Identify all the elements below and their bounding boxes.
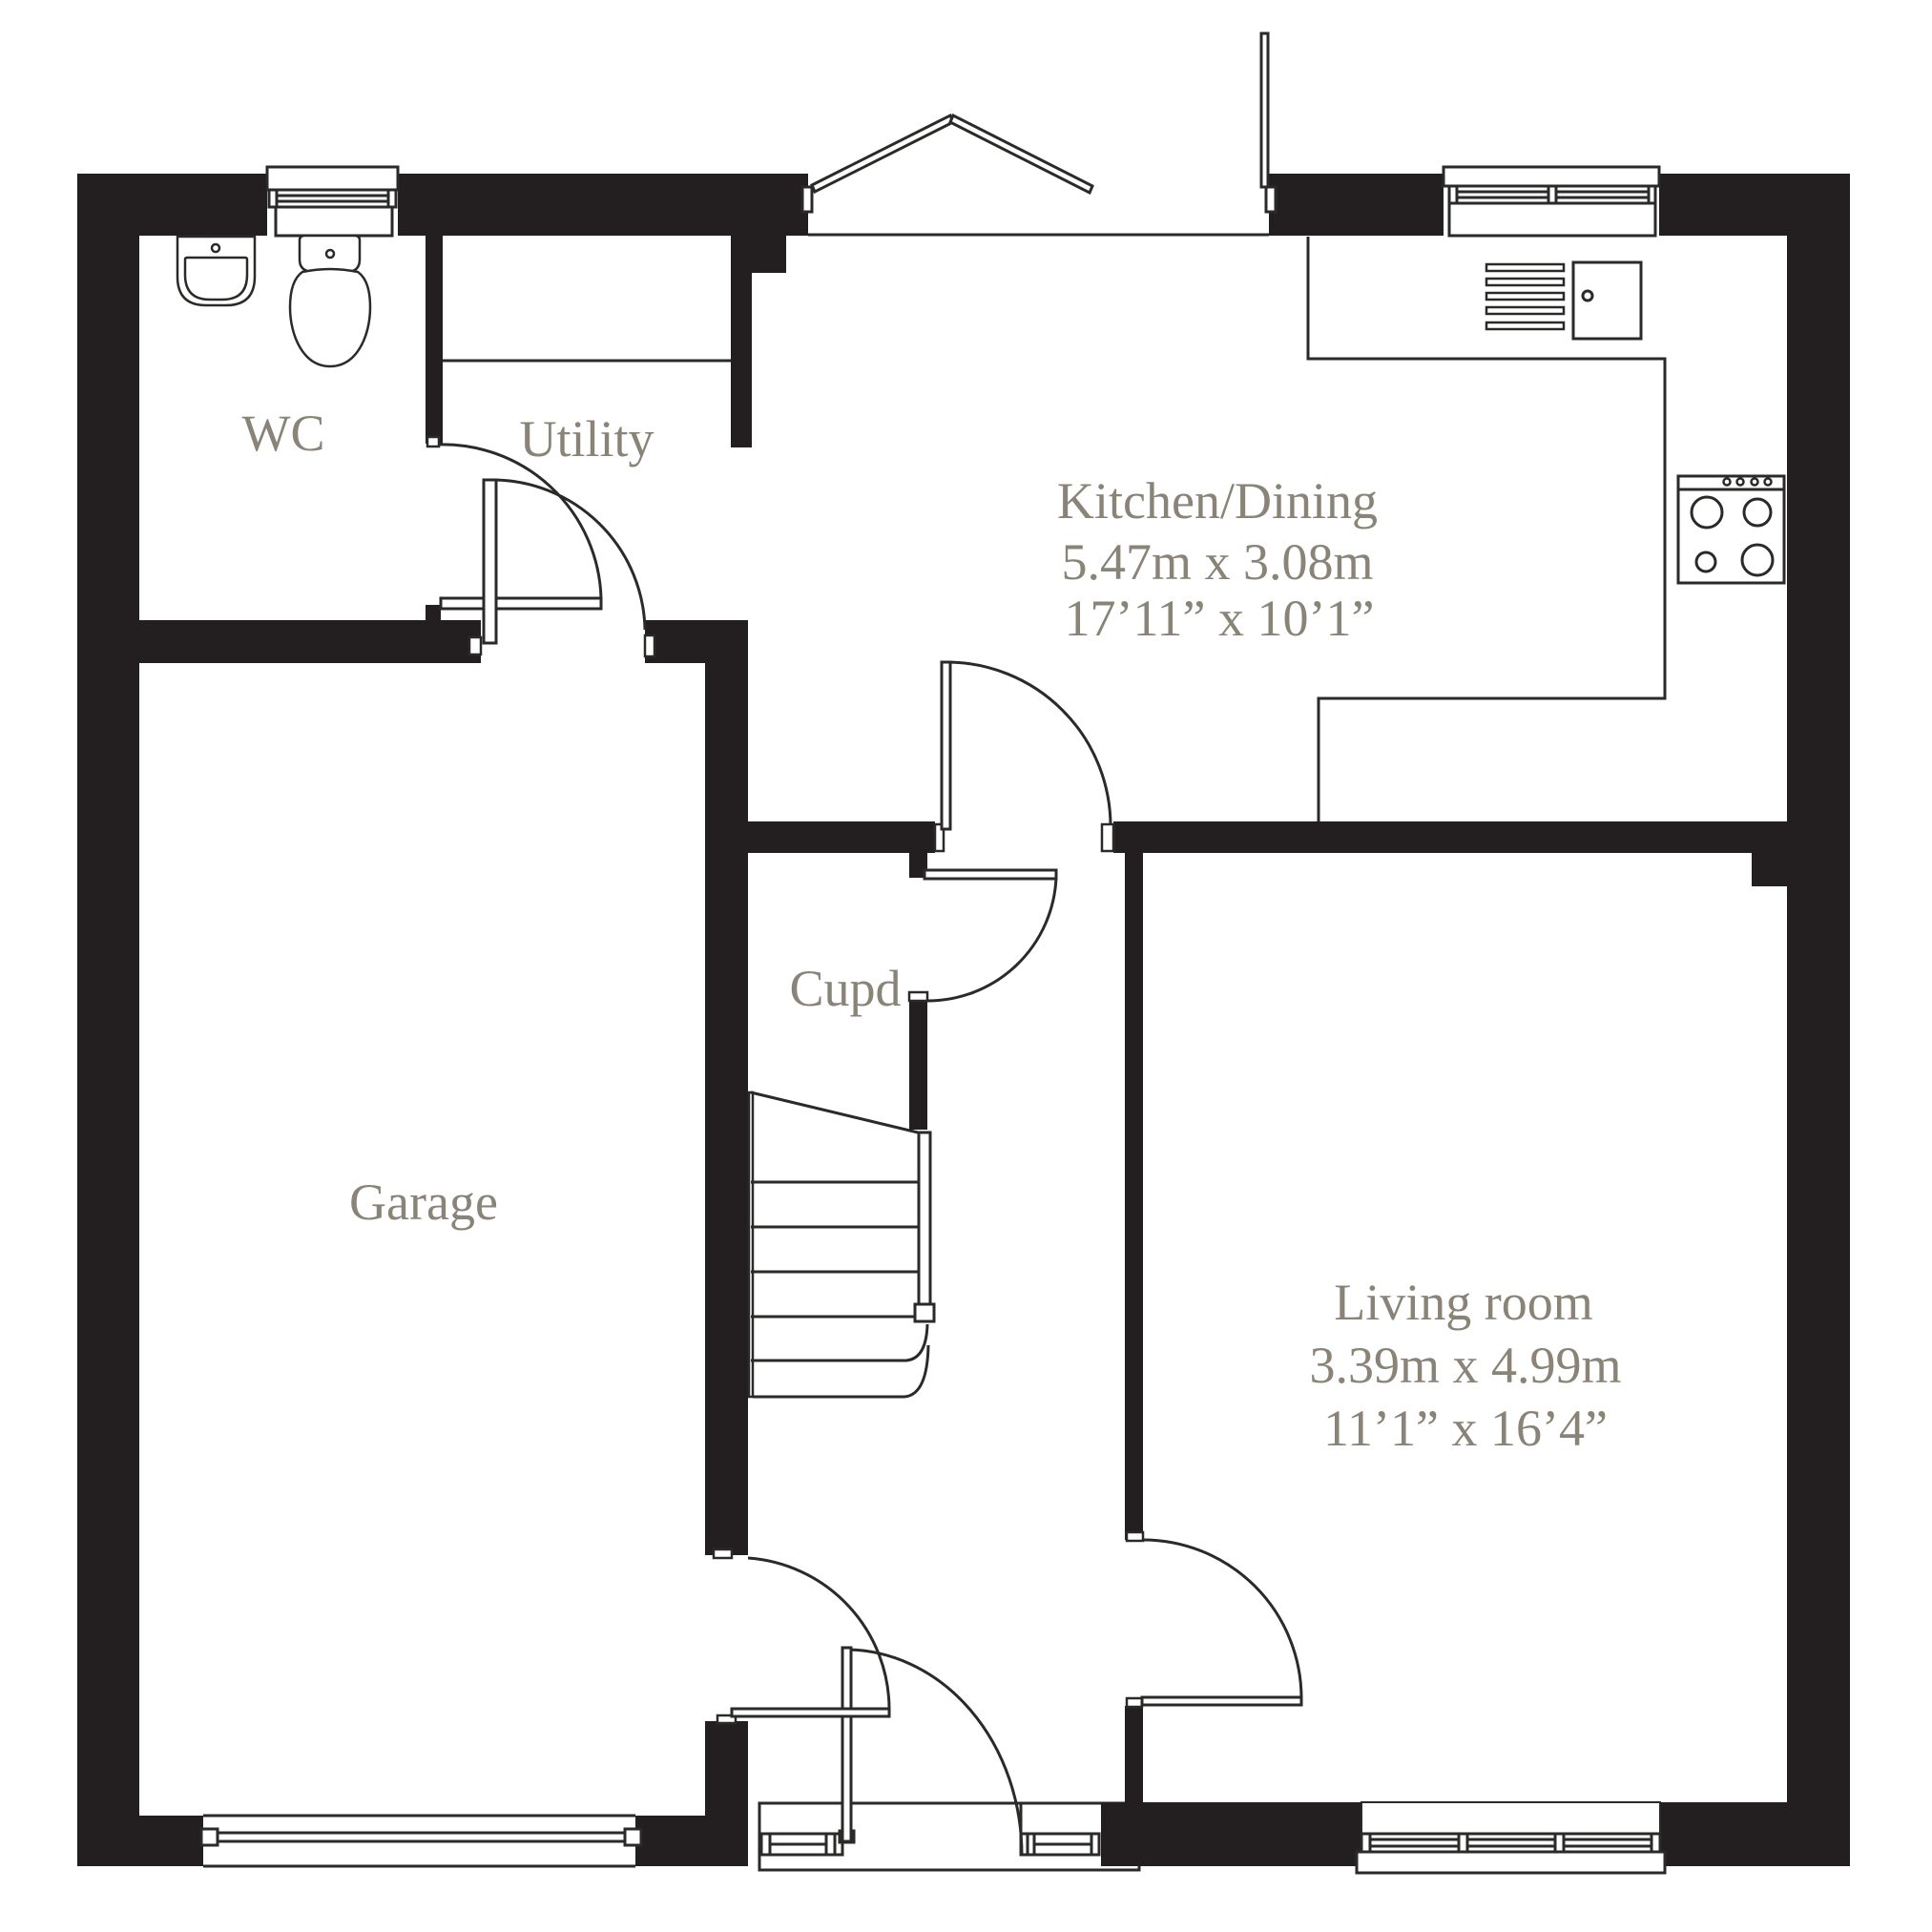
svg-text:Utility: Utility xyxy=(519,410,654,467)
svg-text:3.39m x 4.99m: 3.39m x 4.99m xyxy=(1309,1337,1621,1394)
svg-text:11’1” x 16’4”: 11’1” x 16’4” xyxy=(1323,1400,1608,1457)
svg-text:Cupd: Cupd xyxy=(789,960,901,1017)
svg-text:5.47m x 3.08m: 5.47m x 3.08m xyxy=(1061,533,1373,591)
svg-text:WC: WC xyxy=(242,405,325,462)
svg-text:Garage: Garage xyxy=(349,1174,498,1231)
svg-text:Kitchen/Dining: Kitchen/Dining xyxy=(1057,472,1378,530)
svg-text:Living room: Living room xyxy=(1334,1274,1592,1331)
svg-text:17’11” x 10’1”: 17’11” x 10’1” xyxy=(1065,590,1375,647)
